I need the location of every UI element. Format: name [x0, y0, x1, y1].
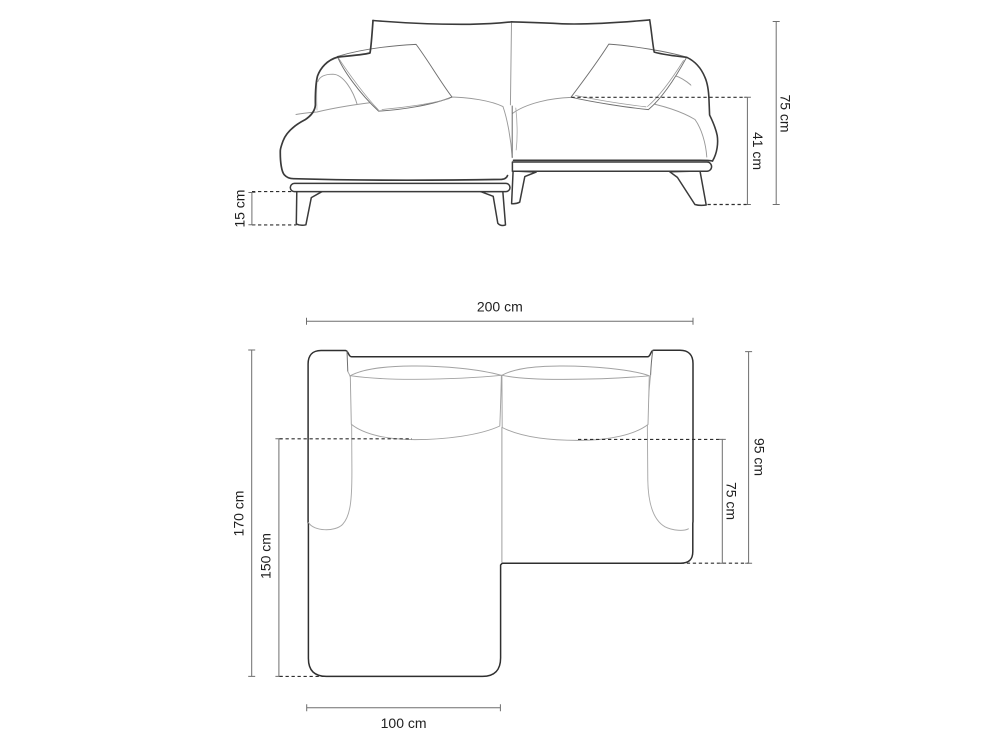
svg-text:15 cm: 15 cm	[232, 190, 248, 228]
svg-text:150 cm: 150 cm	[258, 533, 274, 579]
svg-text:200 cm: 200 cm	[477, 299, 523, 315]
svg-text:41 cm: 41 cm	[750, 132, 766, 170]
svg-text:75 cm: 75 cm	[778, 94, 794, 132]
svg-text:95 cm: 95 cm	[752, 438, 768, 476]
svg-text:75 cm: 75 cm	[724, 482, 740, 520]
svg-text:100 cm: 100 cm	[381, 715, 427, 731]
svg-text:170 cm: 170 cm	[231, 491, 247, 537]
